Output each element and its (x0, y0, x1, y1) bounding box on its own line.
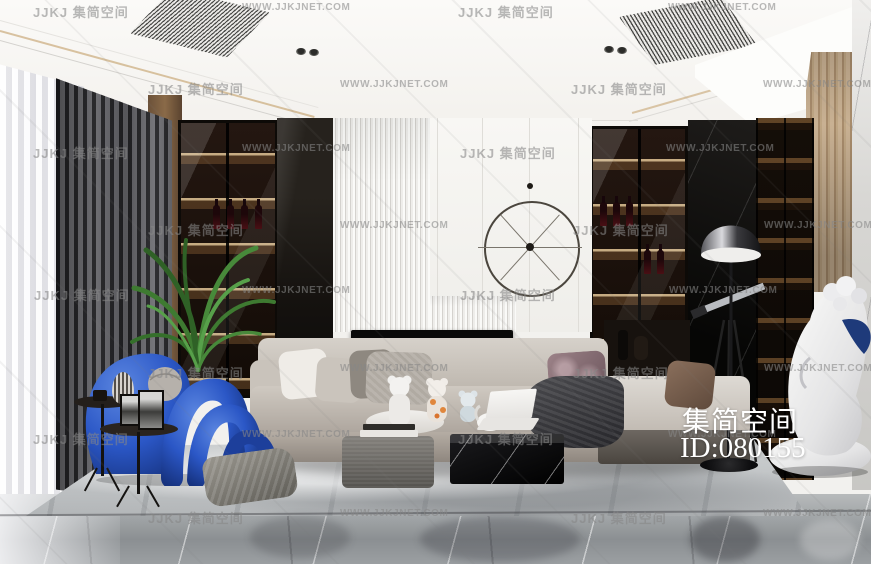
fluted-panel (333, 118, 430, 332)
pouf-shadow (772, 466, 868, 478)
book-dark (363, 424, 415, 430)
floor-reflection (690, 516, 760, 562)
bear-orange-spots (426, 378, 448, 422)
laptop-screen (485, 388, 537, 421)
bear-blue-small (459, 391, 478, 423)
fluted-band (430, 296, 516, 332)
downlight (617, 47, 627, 54)
side-table-stem (137, 432, 140, 494)
clock-hub (526, 243, 534, 251)
console-vase (634, 336, 648, 360)
downlight (604, 46, 614, 53)
side-table-stem (101, 404, 104, 476)
wine-bottle (644, 250, 651, 274)
console-vase (618, 330, 628, 360)
wine-bottle (600, 202, 607, 226)
floor-reflection (420, 516, 580, 562)
wine-bottle (657, 250, 664, 274)
photo-frame (138, 390, 164, 430)
clock-top-ball (527, 183, 533, 189)
panel-seam (578, 118, 579, 332)
floor-reflection (250, 516, 350, 558)
downlight (309, 49, 319, 56)
downlight (296, 48, 306, 55)
book-white (360, 430, 418, 437)
marble-table-top-face (450, 434, 564, 443)
black-cup (93, 390, 107, 401)
bear-white (388, 376, 412, 427)
wine-bottle (626, 202, 633, 226)
fabric-ottoman (342, 436, 434, 488)
framed-photo (122, 396, 138, 424)
statue-curl (851, 288, 867, 304)
telescope-eyepiece (692, 309, 706, 315)
photo-frame (120, 394, 140, 426)
floor-reflection (800, 520, 860, 560)
statue-curl (833, 297, 847, 311)
framed-photo (140, 392, 162, 428)
laptop-base (476, 418, 539, 430)
brand-id: ID:080155 (680, 432, 806, 465)
living-room-render: JJKJ 集简空间WWW.JJKJNET.COMJJKJ 集简空间WWW.JJK… (0, 0, 871, 564)
wine-bottle (613, 202, 620, 226)
lamp-shade-diffuser (701, 248, 761, 263)
